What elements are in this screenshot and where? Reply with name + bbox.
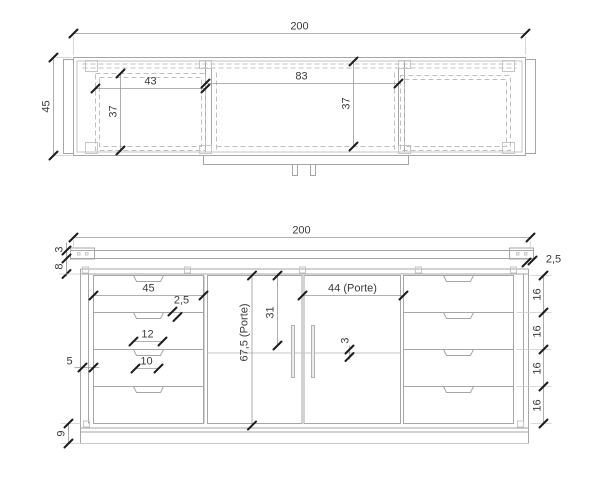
dim-left-compartment-depth: 37 [108, 105, 120, 117]
center-doors [204, 276, 401, 424]
drawer-notch-handle [444, 313, 474, 319]
dim-drawer-height-3: 16 [532, 362, 544, 374]
dim-top-gap: 8 [54, 263, 66, 269]
dim-handle-offset: 31 [265, 306, 277, 318]
top-view-door-edge [204, 156, 409, 176]
dim-overall-depth: 45 [41, 100, 53, 112]
door-handle [292, 326, 295, 378]
dim-center-compartment-depth: 37 [341, 97, 353, 109]
drawer-notch-handle [444, 350, 474, 356]
drawer-notch-handle [134, 387, 164, 393]
dim-center-compartment-width: 83 [295, 71, 307, 83]
drawer-notch-handle [444, 276, 474, 282]
drawer-notch-handle [134, 276, 164, 282]
top-view-dimensions: 200 45 43 83 37 37 [41, 21, 530, 160]
dim-door-height: 67,5 (Porte) [239, 303, 251, 361]
dim-side-thickness: 5 [66, 356, 72, 368]
dim-door-width: 44 (Porte) [328, 283, 377, 295]
dim-top-thickness: 3 [54, 246, 66, 252]
dim-drawer-width: 45 [142, 283, 154, 295]
dim-plinth-height: 9 [56, 430, 68, 436]
dim-drawer-height-1: 16 [532, 288, 544, 300]
front-view-top-panel [71, 248, 534, 259]
dim-drawer-height-2: 16 [532, 325, 544, 337]
dim-drawer-gap: 2,5 [174, 295, 189, 307]
door-handle [312, 326, 315, 378]
dim-top-overhang: 2,5 [546, 254, 561, 266]
technical-drawing: 200 45 43 83 37 37 [0, 0, 600, 480]
dim-overall-width-front-view: 200 [292, 225, 310, 237]
front-view-dimensions: 200 3 8 2,5 45 2,5 [54, 225, 562, 448]
drawer-notch-handle [134, 313, 164, 319]
top-view: 200 45 43 83 37 37 [41, 21, 536, 176]
drawer-notch-handle [444, 387, 474, 393]
dim-handle-width-top: 12 [141, 329, 153, 341]
left-door [208, 276, 303, 424]
right-door [304, 276, 401, 424]
dim-left-compartment-width: 43 [144, 76, 156, 88]
front-view: 200 3 8 2,5 45 2,5 [54, 225, 562, 448]
dim-shelf-thickness: 3 [340, 337, 352, 343]
door-handle-tab [311, 165, 316, 176]
dim-overall-width-top-view: 200 [290, 21, 308, 33]
door-handle-tab [293, 165, 298, 176]
dim-drawer-height-4: 16 [532, 399, 544, 411]
dim-handle-width-bottom: 10 [140, 356, 152, 368]
right-drawer-bank [404, 276, 514, 424]
